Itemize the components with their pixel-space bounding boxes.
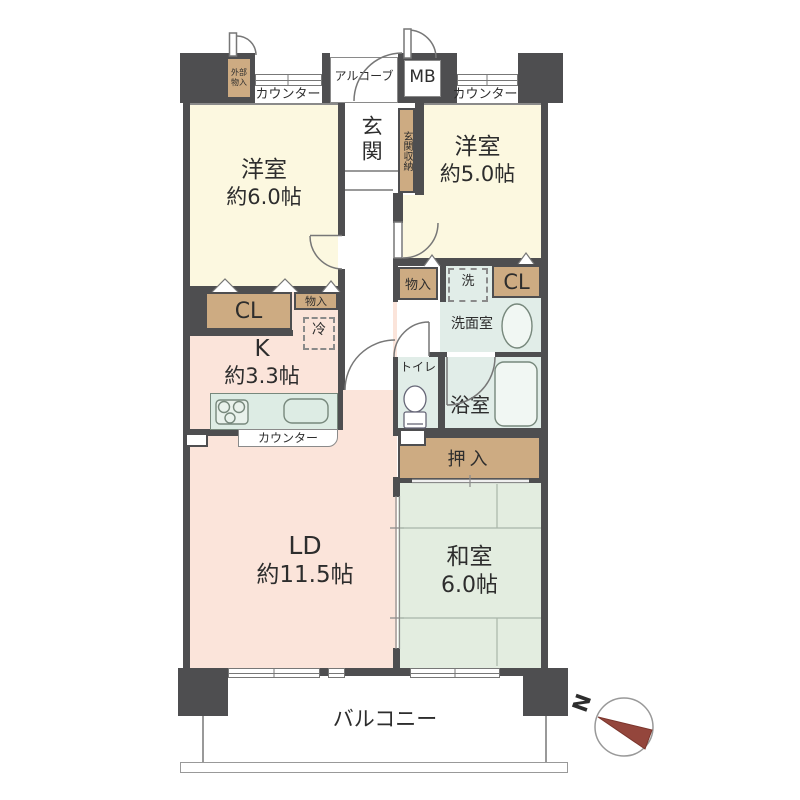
window-balcony-ld: [228, 668, 320, 678]
wall-left: [183, 103, 190, 668]
bathroom-label: 浴室: [443, 392, 497, 418]
hallway-step-line: [345, 189, 393, 191]
washroom-label: 洗面室: [440, 316, 504, 334]
balcony-label: バルコニー: [295, 705, 475, 733]
entrance-label: 玄関: [355, 106, 387, 174]
wall-right: [541, 103, 548, 668]
room-western5-floor-lower: [403, 195, 541, 258]
entrance-storage: 玄関収納: [398, 108, 415, 193]
room-western6-label: 洋室 約6.0帖: [190, 144, 338, 222]
north-label: N: [563, 683, 600, 723]
closet-monoire-left-label: 物入: [305, 293, 327, 309]
kitchen-left-notch: [185, 433, 208, 447]
alcove-label: アルコーブ: [328, 68, 400, 84]
wall-kitchen-east: [338, 390, 343, 430]
wall-bottom-right-pillar: [523, 668, 568, 716]
balcony-edge-right: [545, 716, 547, 763]
window-counter-right: [457, 74, 518, 86]
room-japanese-name: 和室: [447, 543, 493, 572]
closet-monoire-right-label: 物入: [405, 274, 431, 293]
door-leaf-western5: [394, 222, 402, 258]
wall-bath-north-b: [495, 352, 541, 357]
closet-cl-left: CL: [205, 292, 292, 330]
hallway-floor: [345, 193, 393, 390]
room-western5-label: 洋室 約5.0帖: [414, 122, 541, 198]
exterior-storage-label: 外部物入: [230, 68, 248, 87]
wall-bottom-left-pillar: [178, 668, 228, 716]
room-western6-name: 洋室: [241, 156, 287, 185]
oshiire-notch: [399, 429, 426, 446]
room-ld-name: LD: [288, 530, 321, 561]
room-japanese-label: 和室 6.0帖: [398, 536, 541, 606]
window-balcony-small: [328, 668, 345, 678]
closet-cl-left-label: CL: [235, 299, 263, 324]
closet-cl-right: CL: [492, 265, 541, 298]
room-western6-size: 約6.0帖: [226, 184, 301, 210]
meter-box-label: MB: [404, 66, 441, 90]
wall-washroom-west: [440, 266, 446, 302]
kitchen-counter-label: カウンター: [238, 430, 338, 446]
closet-cl-right-label: CL: [503, 270, 529, 294]
room-western5-name: 洋室: [455, 133, 501, 162]
balcony-slab: [180, 762, 568, 773]
closet-oshiire-label: 押入: [448, 445, 492, 471]
wall-bottom-seg-2: [345, 668, 411, 676]
wall-west6-east-upper: [338, 103, 345, 236]
washer-label: 洗: [448, 272, 488, 292]
compass-icon: [595, 698, 653, 756]
window-balcony-japanese: [410, 668, 500, 678]
exterior-storage: 外部物入: [226, 57, 252, 99]
counter-label-left: カウンター: [250, 87, 326, 103]
washroom-vestibule-floor: [398, 300, 440, 357]
wall-hall-east-b: [393, 258, 403, 266]
window-counter-left: [255, 74, 322, 86]
room-ld-size: 約11.5帖: [256, 561, 353, 590]
wall-divider-cap-bottom: [393, 648, 400, 668]
closet-monoire-right: 物入: [398, 267, 438, 300]
room-western5-size: 約5.0帖: [440, 161, 515, 187]
wall-top-right-block: [518, 53, 563, 103]
room-kitchen-name: K: [254, 335, 269, 364]
entrance-storage-label: 玄関収納: [399, 131, 414, 171]
room-ld-label: LD 約11.5帖: [225, 526, 385, 594]
room-kitchen-size: 約3.3帖: [224, 363, 299, 389]
closet-monoire-left: 物入: [294, 292, 338, 310]
counter-label-right: カウンター: [447, 87, 523, 103]
balcony-edge-left: [202, 716, 204, 763]
toilet-label: トイレ: [396, 359, 440, 375]
floor-plan: CL 物入 玄関収納 物入 CL 押入 外部物入 カウンター カウンター アルコ…: [0, 0, 800, 800]
wall-cl-left-chunk: [190, 292, 205, 336]
wall-hall-east-a: [393, 193, 403, 223]
refrigerator-label: 冷: [303, 321, 335, 341]
kitchen-counter-top: [210, 393, 338, 430]
room-kitchen-label: K 約3.3帖: [198, 332, 326, 392]
room-japanese-size: 6.0帖: [441, 572, 498, 600]
